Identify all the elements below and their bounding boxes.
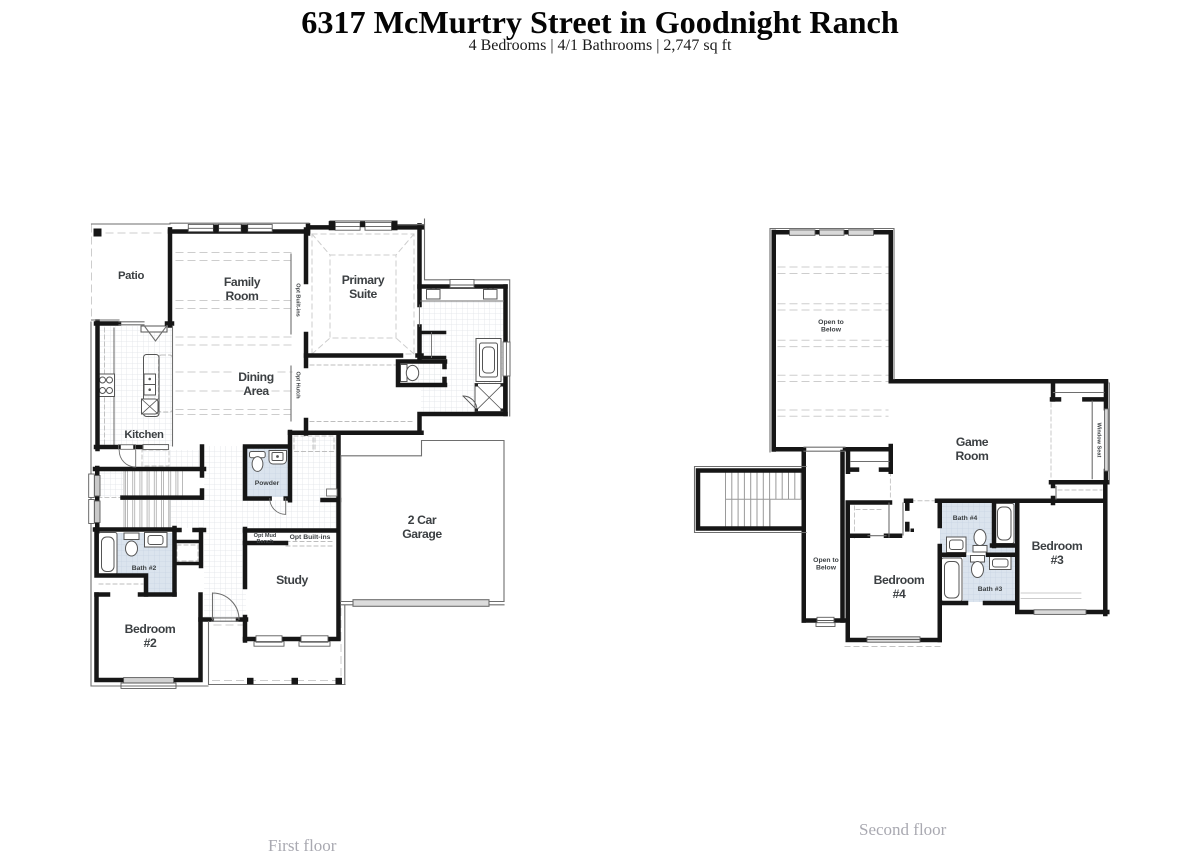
svg-text:Room: Room — [956, 449, 989, 463]
svg-text:Window Seat: Window Seat — [1096, 423, 1102, 458]
svg-text:Dining: Dining — [238, 370, 274, 384]
svg-text:Bath #4: Bath #4 — [953, 515, 978, 522]
svg-text:#3: #3 — [1051, 553, 1064, 567]
svg-text:Bench: Bench — [256, 539, 274, 545]
svg-text:Below: Below — [816, 565, 837, 572]
svg-text:Bedroom: Bedroom — [1032, 539, 1083, 553]
svg-text:Kitchen: Kitchen — [124, 429, 164, 441]
svg-text:Bath #3: Bath #3 — [978, 586, 1003, 593]
svg-text:Study: Study — [276, 573, 308, 587]
svg-text:Room: Room — [226, 289, 259, 303]
svg-text:Powder: Powder — [255, 480, 280, 487]
svg-text:Primary: Primary — [342, 273, 385, 287]
svg-text:Garage: Garage — [402, 527, 442, 541]
svg-text:Area: Area — [243, 384, 269, 398]
svg-text:Bedroom: Bedroom — [874, 573, 925, 587]
svg-text:#2: #2 — [144, 636, 157, 650]
svg-text:Open to: Open to — [813, 557, 839, 564]
svg-text:Open to: Open to — [818, 319, 844, 326]
svg-text:Bath #2: Bath #2 — [132, 565, 157, 572]
svg-text:Opt Hutch: Opt Hutch — [295, 371, 301, 399]
svg-text:Family: Family — [224, 275, 261, 289]
svg-text:2 Car: 2 Car — [408, 513, 437, 527]
svg-text:Bedroom: Bedroom — [125, 622, 176, 636]
svg-text:Opt Built-ins: Opt Built-ins — [295, 283, 301, 317]
svg-text:Game: Game — [956, 435, 989, 449]
svg-text:Suite: Suite — [349, 287, 377, 301]
svg-text:Below: Below — [821, 327, 842, 334]
svg-text:Opt Built-ins: Opt Built-ins — [290, 534, 331, 541]
svg-text:Patio: Patio — [118, 270, 145, 282]
svg-text:#4: #4 — [893, 587, 906, 601]
